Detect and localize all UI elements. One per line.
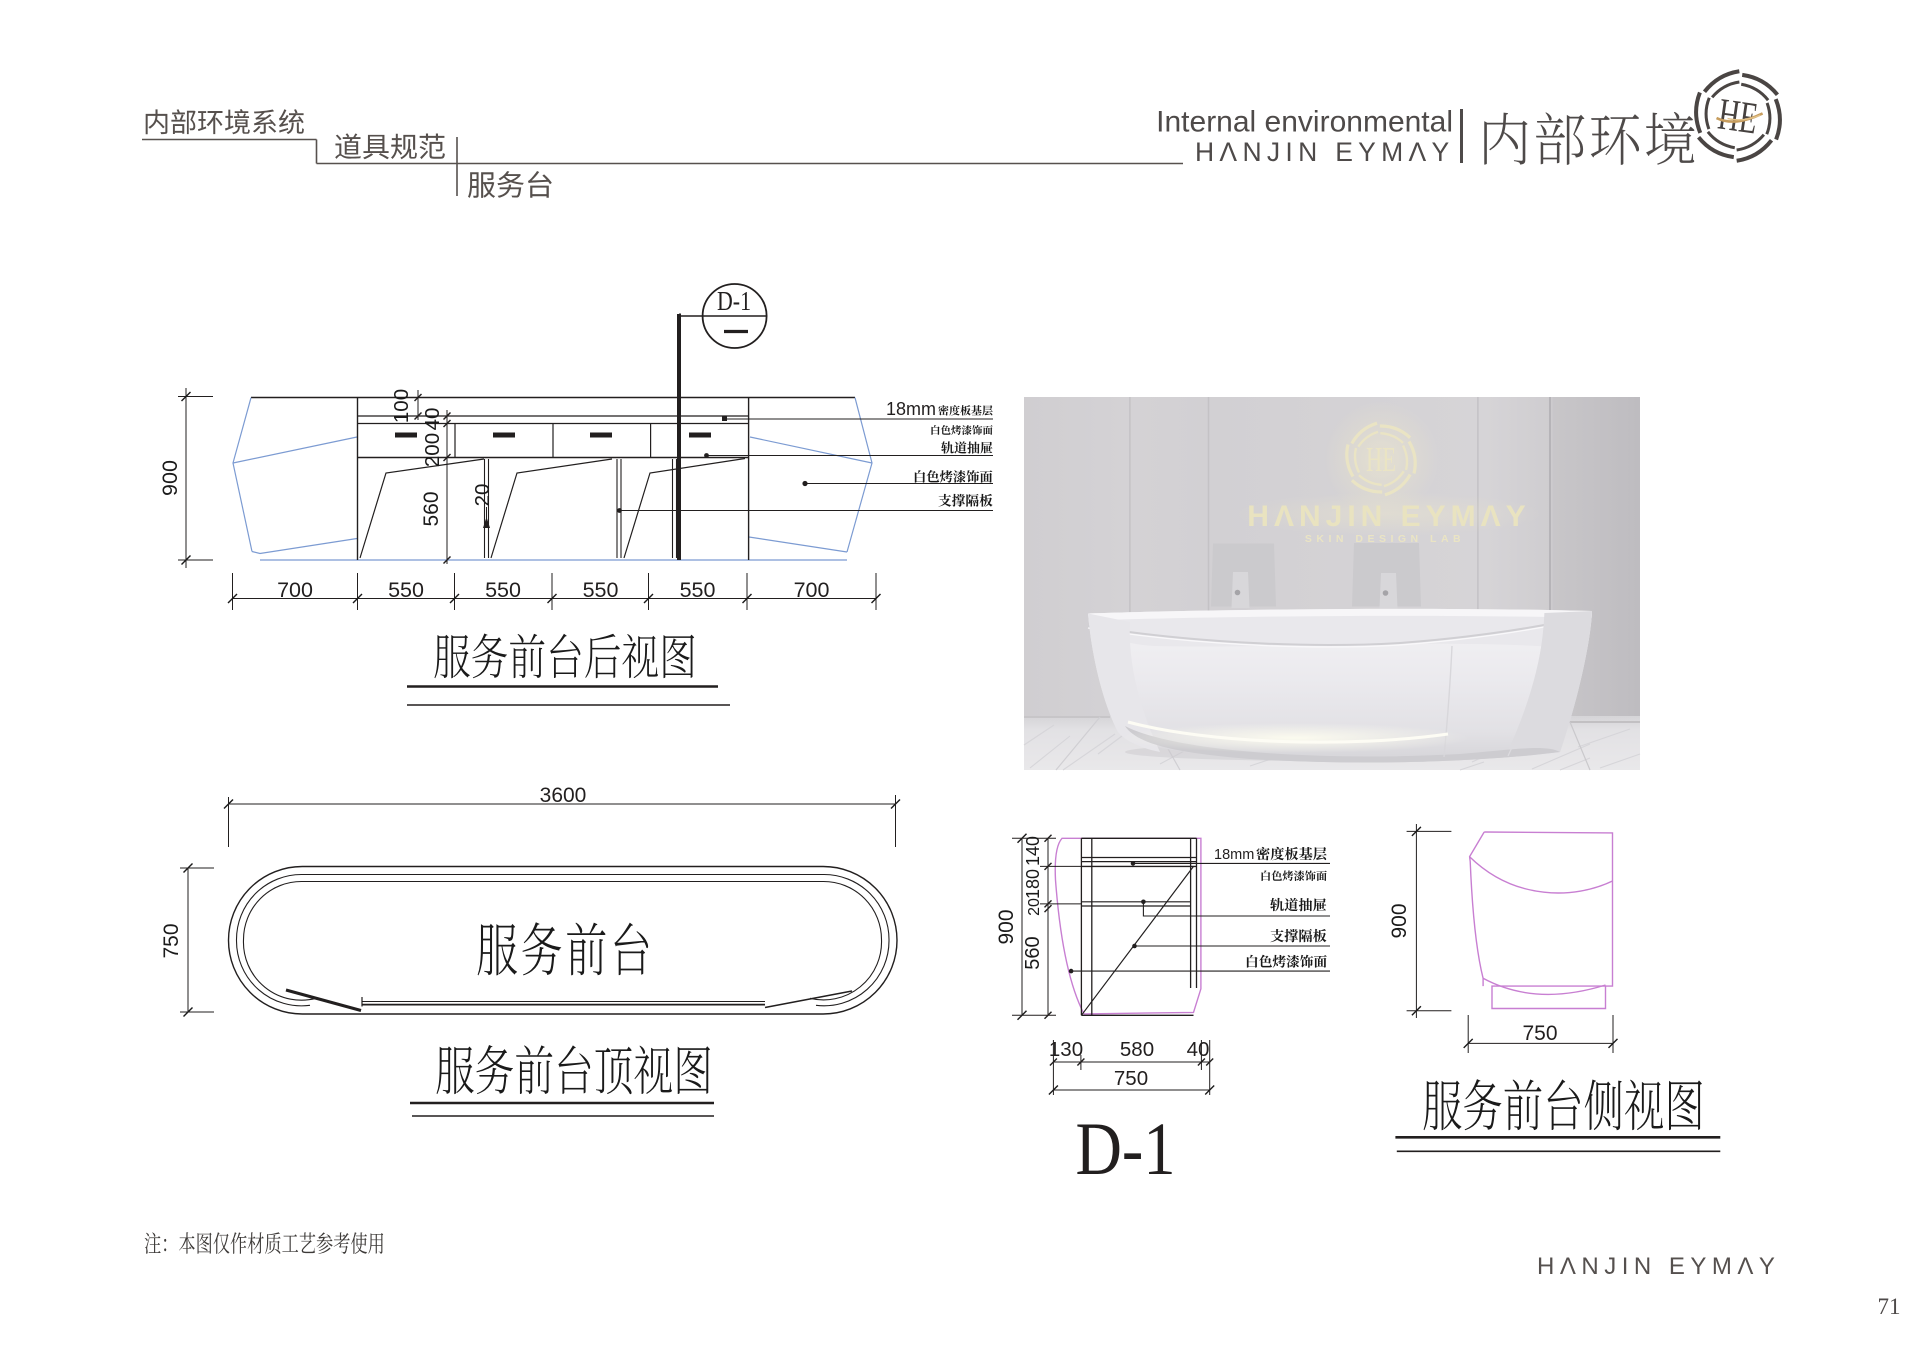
svg-text:560: 560 bbox=[1022, 936, 1044, 969]
svg-text:700: 700 bbox=[794, 578, 830, 602]
svg-text:HΛNJIN EYMΛY: HΛNJIN EYMΛY bbox=[1537, 1253, 1780, 1280]
svg-text:560: 560 bbox=[420, 491, 443, 526]
svg-text:40: 40 bbox=[1187, 1038, 1210, 1061]
svg-text:3600: 3600 bbox=[540, 784, 587, 807]
svg-text:750: 750 bbox=[1522, 1022, 1557, 1045]
svg-text:100: 100 bbox=[390, 389, 413, 423]
svg-text:700: 700 bbox=[277, 578, 313, 602]
svg-text:Internal environmental: Internal environmental bbox=[1156, 106, 1453, 139]
svg-text:D-1: D-1 bbox=[717, 286, 751, 316]
svg-text:18mm: 18mm bbox=[886, 399, 936, 419]
svg-text:HΛNJIN EYMΛY: HΛNJIN EYMΛY bbox=[1247, 500, 1530, 533]
svg-text:750: 750 bbox=[1114, 1067, 1148, 1090]
svg-text:HΛNJIN EYMΛY: HΛNJIN EYMΛY bbox=[1195, 137, 1455, 167]
svg-text:20: 20 bbox=[471, 484, 494, 507]
svg-text:18mm: 18mm bbox=[1214, 847, 1254, 863]
svg-text:550: 550 bbox=[388, 578, 424, 602]
svg-text:40: 40 bbox=[421, 408, 444, 431]
svg-text:180: 180 bbox=[1023, 869, 1043, 899]
svg-text:130: 130 bbox=[1049, 1038, 1083, 1061]
svg-text:20: 20 bbox=[1026, 898, 1043, 916]
svg-text:71: 71 bbox=[1878, 1294, 1901, 1319]
svg-text:550: 550 bbox=[680, 578, 716, 602]
svg-text:900: 900 bbox=[158, 460, 182, 496]
svg-text:550: 550 bbox=[485, 578, 521, 602]
svg-text:580: 580 bbox=[1120, 1038, 1154, 1061]
svg-text:HE: HE bbox=[1366, 440, 1396, 479]
svg-text:900: 900 bbox=[1388, 903, 1411, 938]
svg-text:140: 140 bbox=[1023, 836, 1043, 866]
svg-text:D-1: D-1 bbox=[1076, 1108, 1176, 1191]
svg-text:200: 200 bbox=[421, 433, 444, 467]
svg-text:550: 550 bbox=[583, 578, 619, 602]
svg-text:900: 900 bbox=[995, 909, 1018, 944]
svg-text:750: 750 bbox=[160, 923, 183, 958]
